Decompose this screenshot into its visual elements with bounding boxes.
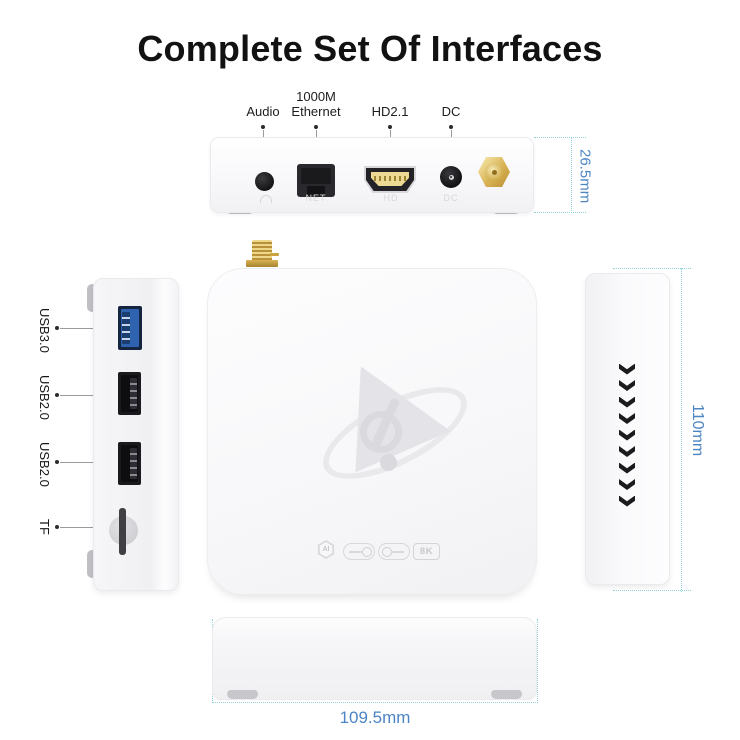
ai-badge: AI <box>317 540 335 559</box>
height-dimension-text: 26.5mm <box>576 136 594 216</box>
hd-engraved-label: HD <box>384 193 399 203</box>
antenna-connector-base <box>246 260 278 267</box>
height-dim-line <box>571 137 572 213</box>
vent-chevron-icon <box>619 413 635 424</box>
usb3-leader-dot <box>55 326 59 330</box>
length-dim-tick-bottom <box>613 590 691 591</box>
usb2b-leader-dot <box>55 460 59 464</box>
product-diagram: Complete Set Of Interfaces Audio 1000M E… <box>0 0 740 740</box>
audio-jack-port <box>255 172 274 191</box>
width-dimension-text: 109.5mm <box>212 708 538 728</box>
tf-port-label: TF <box>37 513 52 541</box>
vent-chevron-icon <box>619 463 635 474</box>
tf-leader-dot <box>55 525 59 529</box>
8k-badge: 8K <box>413 543 440 560</box>
width-dim-line <box>212 702 538 703</box>
length-dim-line <box>681 268 682 592</box>
usb2-port-label-2: USB2.0 <box>37 438 52 490</box>
hdmi-port <box>366 168 414 191</box>
page-title: Complete Set Of Interfaces <box>0 28 740 70</box>
right-side-body <box>585 273 670 585</box>
ai-badge-label: AI <box>319 542 333 557</box>
tf-leader-line <box>60 527 94 528</box>
antenna-connector-pin <box>270 253 279 256</box>
dc-port-pin <box>449 175 454 180</box>
headphone-icon <box>260 195 272 203</box>
front-foot-left <box>227 690 258 699</box>
front-foot-right <box>491 690 522 699</box>
toggle-right-badge-icon <box>343 543 375 560</box>
hdmi-port-label: HD2.1 <box>372 105 409 120</box>
dc-port <box>440 166 462 188</box>
vent-chevron-icon <box>619 446 635 457</box>
dc-port-label: DC <box>442 105 461 120</box>
usb3-leader-line <box>60 328 94 329</box>
ethernet-port-label: 1000M Ethernet <box>291 90 340 119</box>
dc-engraved-label: DC <box>444 193 459 203</box>
front-view-body <box>212 617 537 700</box>
usb2-port-1-tongue <box>130 378 137 409</box>
usb2b-leader-line <box>60 462 94 463</box>
brand-logo-dot-icon <box>380 454 397 471</box>
top-view-body: AI 8K <box>207 268 537 595</box>
hdmi-leader-dot <box>388 125 392 129</box>
vent-chevron-icon <box>619 364 635 375</box>
vent-chevron-icon <box>619 380 635 391</box>
usb2-port-label-1: USB2.0 <box>37 371 52 423</box>
usb2-port-2 <box>118 442 141 485</box>
usb3-port-tongue <box>122 312 130 344</box>
tf-card-slot <box>119 508 126 555</box>
usb2-port-1 <box>118 372 141 415</box>
length-dim-tick-top <box>613 268 691 269</box>
ethernet-leader-dot <box>314 125 318 129</box>
usb2-port-2-tongue <box>130 448 137 479</box>
toggle-right-badge-text-mark <box>349 551 362 553</box>
dc-leader-dot <box>449 125 453 129</box>
antenna-connector-thread <box>252 240 272 261</box>
antenna-sma-hole <box>492 170 497 175</box>
net-engraved-label: NET <box>306 193 327 203</box>
vent-chevron-icon <box>619 496 635 507</box>
vent-chevron-icon <box>619 479 635 490</box>
toggle-left-badge-text-mark <box>391 551 404 553</box>
hdmi-port-contact <box>371 172 409 186</box>
audio-port-label: Audio <box>246 105 279 120</box>
vent-chevrons <box>609 358 645 512</box>
audio-leader-dot <box>261 125 265 129</box>
width-dim-tick-right <box>537 619 538 703</box>
ethernet-port-inner <box>301 168 331 184</box>
length-dimension-text: 110mm <box>687 270 707 590</box>
usb2a-leader-line <box>60 395 94 396</box>
toggle-left-badge-icon <box>378 543 410 560</box>
usb3-port-label: USB3.0 <box>37 304 52 356</box>
usb2a-leader-dot <box>55 393 59 397</box>
usb3-port <box>118 306 142 350</box>
toggle-right-badge-ring <box>362 547 372 557</box>
vent-chevron-icon <box>619 397 635 408</box>
vent-chevron-icon <box>619 430 635 441</box>
toggle-left-badge-ring <box>382 547 392 557</box>
hdmi-port-pins <box>374 176 406 181</box>
